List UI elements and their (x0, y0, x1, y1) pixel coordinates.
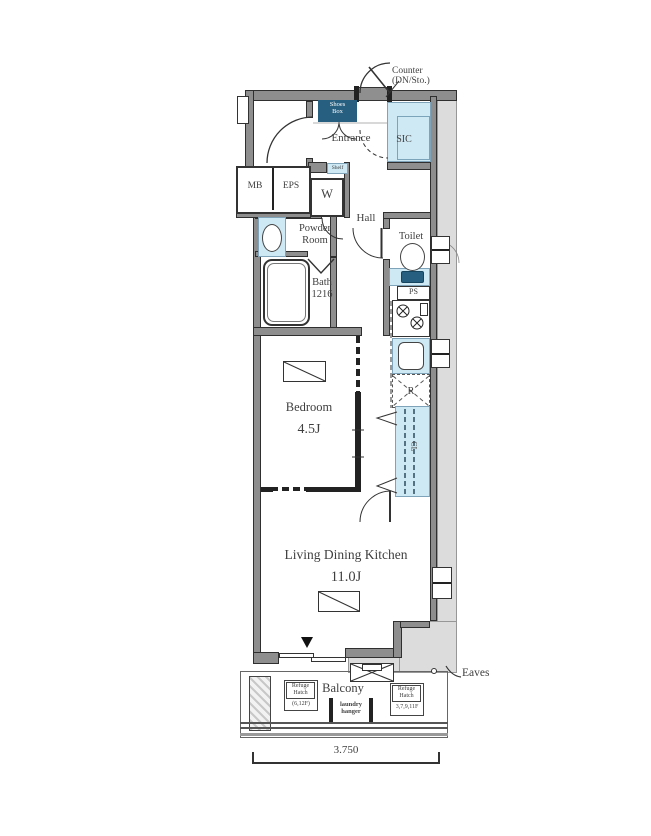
shelf-label: Shelf (327, 165, 348, 171)
bath-label: Bath 1216 (301, 277, 343, 300)
refuge-hatch-left-line2: Hatch (286, 690, 315, 697)
refuge-hatch-right-label: Refuge Hatch (392, 686, 421, 699)
shoes-box-label-line2: Box (318, 108, 357, 115)
counter-label-line1: Counter (392, 66, 452, 76)
washer-label: W (310, 188, 344, 202)
refuge-hatch-right-line1: Refuge (392, 686, 421, 693)
ldk-size-label: 11.0J (262, 570, 430, 586)
partition-ticks (352, 430, 364, 457)
window-ldk-mid (433, 582, 451, 584)
closet-door-chevrons (377, 412, 397, 493)
floor-plan: Counter (DN/Sto.) Shoes Box Entrance SIC… (0, 0, 651, 836)
refuge-hatch-left-label: Refuge Hatch (286, 683, 315, 696)
eaves-label: Eaves (462, 667, 506, 680)
closet-label: CL (409, 433, 418, 459)
bath-label-line2: 1216 (301, 289, 343, 301)
refuge-hatch-left-line1: Refuge (286, 683, 315, 690)
ldk-label: Living Dining Kitchen (262, 548, 430, 563)
entrance-door-arc (360, 63, 390, 93)
shoes-box-label: Shoes Box (318, 101, 357, 115)
powder-room-label-line1: Powder (282, 223, 348, 235)
window-toilet-mid (432, 249, 449, 251)
refuge-hatch-left-line3: (6,12F) (283, 701, 319, 708)
powder-room-label-line2: Room (282, 235, 348, 247)
entrance-label: Entrance (316, 132, 386, 144)
refuge-hatch-right-line3: 3,7,9,11F (388, 704, 426, 711)
eps-label: EPS (274, 181, 308, 191)
refuge-hatch-right-line2: Hatch (392, 693, 421, 700)
ps-label: PS (397, 288, 430, 297)
sic-label: SIC (389, 134, 419, 145)
refuge-hatch-symbol-top (362, 664, 382, 671)
toilet-label: Toilet (389, 231, 433, 243)
fridge-label: R (402, 386, 420, 397)
hall-label: Hall (346, 212, 386, 224)
laundry-hanger-label-line2: hanger (333, 708, 369, 715)
counter-label-line2: (DN/Sto.) (392, 76, 452, 86)
bath-label-line1: Bath (301, 277, 343, 289)
bedroom-label: Bedroom (268, 401, 350, 415)
laundry-hanger-label: laundry hanger (333, 701, 369, 715)
window-kitchen-mid (432, 353, 449, 355)
toilet-lid (401, 271, 424, 283)
powder-room-label: Powder Room (282, 223, 348, 246)
bedroom-size-label: 4.5J (268, 422, 350, 437)
laundry-hanger-label-line1: laundry (333, 701, 369, 708)
dimension-width-label: 3.750 (296, 744, 396, 756)
shoes-box-label-line1: Shoes (318, 101, 357, 108)
stove-burners (397, 305, 423, 329)
balcony-corner-mark (431, 668, 437, 674)
toilet-door-arc (353, 228, 383, 258)
corridor-ldk-door-arc (360, 491, 391, 522)
mb-label: MB (238, 181, 272, 191)
eaves-leader-line (446, 666, 461, 677)
counter-label: Counter (DN/Sto.) (392, 66, 452, 87)
floor-plan-linework (0, 0, 651, 836)
entrance-hall-door-arc (267, 117, 313, 163)
bath-folding-door (308, 259, 334, 273)
balcony-label: Balcony (312, 682, 374, 696)
